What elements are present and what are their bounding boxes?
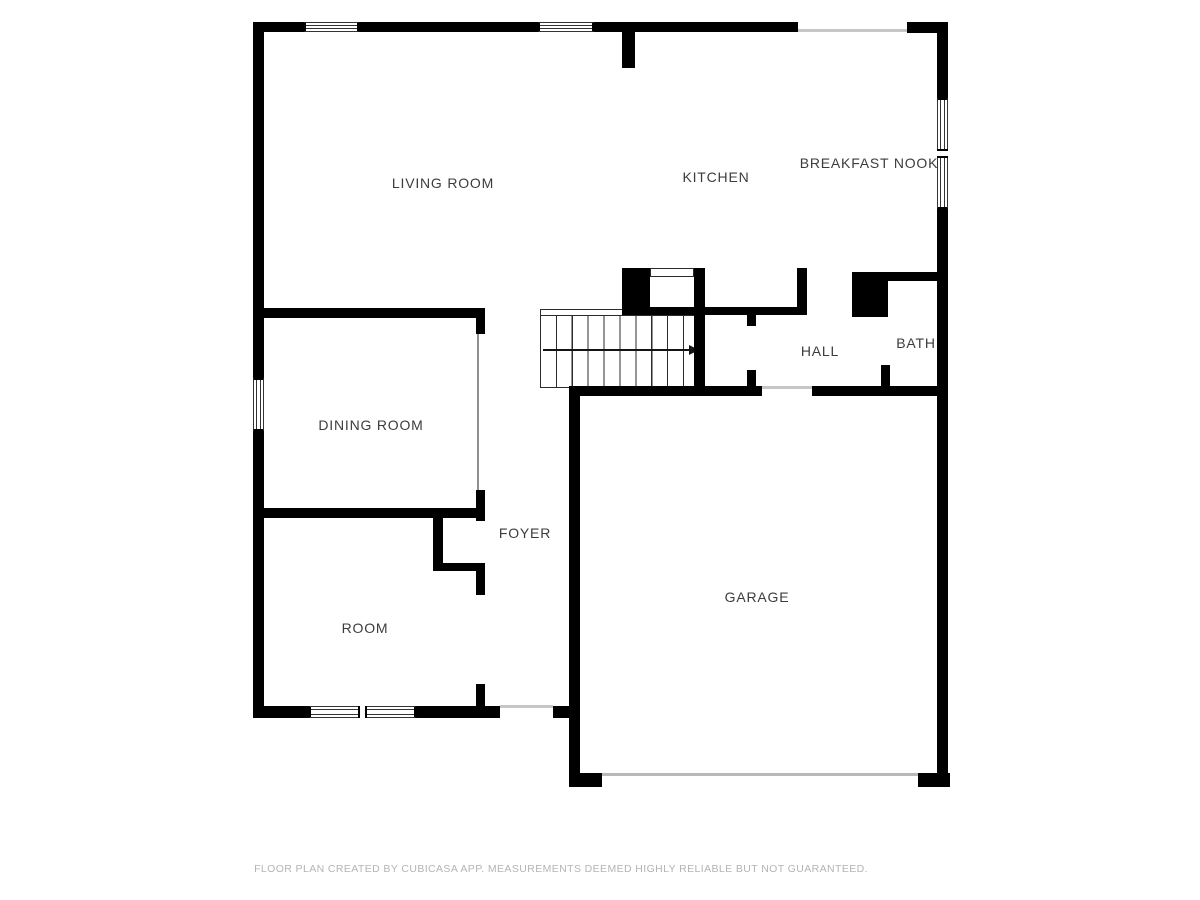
room-label-breakfast-nook: BREAKFAST NOOK — [800, 155, 939, 171]
room-label-hall: HALL — [801, 343, 839, 359]
wall-hall-door-stub — [747, 315, 756, 326]
wall-bath-top — [888, 272, 937, 281]
wall-exterior-bottom — [417, 706, 500, 718]
wall-kitchen-hall — [797, 268, 807, 315]
stair-treads — [541, 315, 699, 387]
window-room — [308, 706, 417, 718]
wall-garage-left — [569, 386, 580, 787]
room-label-garage: GARAGE — [725, 589, 790, 605]
wall-exterior-top — [595, 22, 798, 32]
door-line-garage-hall — [762, 386, 812, 389]
stairs-direction-arrow — [543, 349, 689, 351]
wall-foyer-left — [476, 684, 485, 707]
wall-stairs-right — [694, 268, 705, 396]
garage-door-line — [602, 773, 918, 776]
wall-hall-top — [650, 307, 807, 315]
wall-exterior-right — [937, 210, 948, 787]
wall-garage-bottom — [569, 773, 602, 787]
wall-exterior-top — [360, 22, 537, 32]
room-label-foyer: FOYER — [499, 525, 551, 541]
wall-exterior-left — [253, 432, 264, 718]
wall-dining-right — [476, 308, 485, 334]
wall-garage-top — [569, 386, 762, 396]
front-door-line — [500, 705, 553, 708]
wall-kitchen-stub — [622, 32, 635, 68]
room-label-room: ROOM — [342, 620, 389, 636]
opening-line-dining — [477, 334, 479, 490]
wall-bath-block — [852, 272, 888, 317]
footer-disclaimer: FLOOR PLAN CREATED BY CUBICASA APP. MEAS… — [254, 863, 868, 875]
wall-garage-top — [812, 386, 948, 396]
stairs — [540, 309, 700, 388]
patio-opening-line — [798, 29, 907, 32]
floor-plan: LIVING ROOM KITCHEN BREAKFAST NOOK HALL … — [0, 0, 1200, 900]
stair-railing — [650, 268, 694, 277]
wall-garage-bottom — [918, 773, 950, 787]
room-label-living-room: LIVING ROOM — [392, 175, 494, 191]
wall-dining-top — [253, 308, 485, 318]
room-label-kitchen: KITCHEN — [682, 169, 749, 185]
room-label-bath: BATH — [896, 335, 936, 351]
wall-exterior-right — [937, 22, 948, 97]
window-living-room-right — [537, 22, 595, 32]
window-breakfast-nook — [937, 97, 948, 210]
wall-exterior-left — [253, 22, 264, 377]
wall-exterior-bottom — [253, 706, 308, 718]
room-label-dining-room: DINING ROOM — [318, 417, 423, 433]
window-living-room-left — [303, 22, 360, 32]
wall-closet-bottom — [433, 563, 484, 571]
wall-kitchen-block — [622, 268, 650, 315]
window-dining-room — [253, 377, 264, 432]
wall-dining-bottom — [253, 508, 485, 518]
